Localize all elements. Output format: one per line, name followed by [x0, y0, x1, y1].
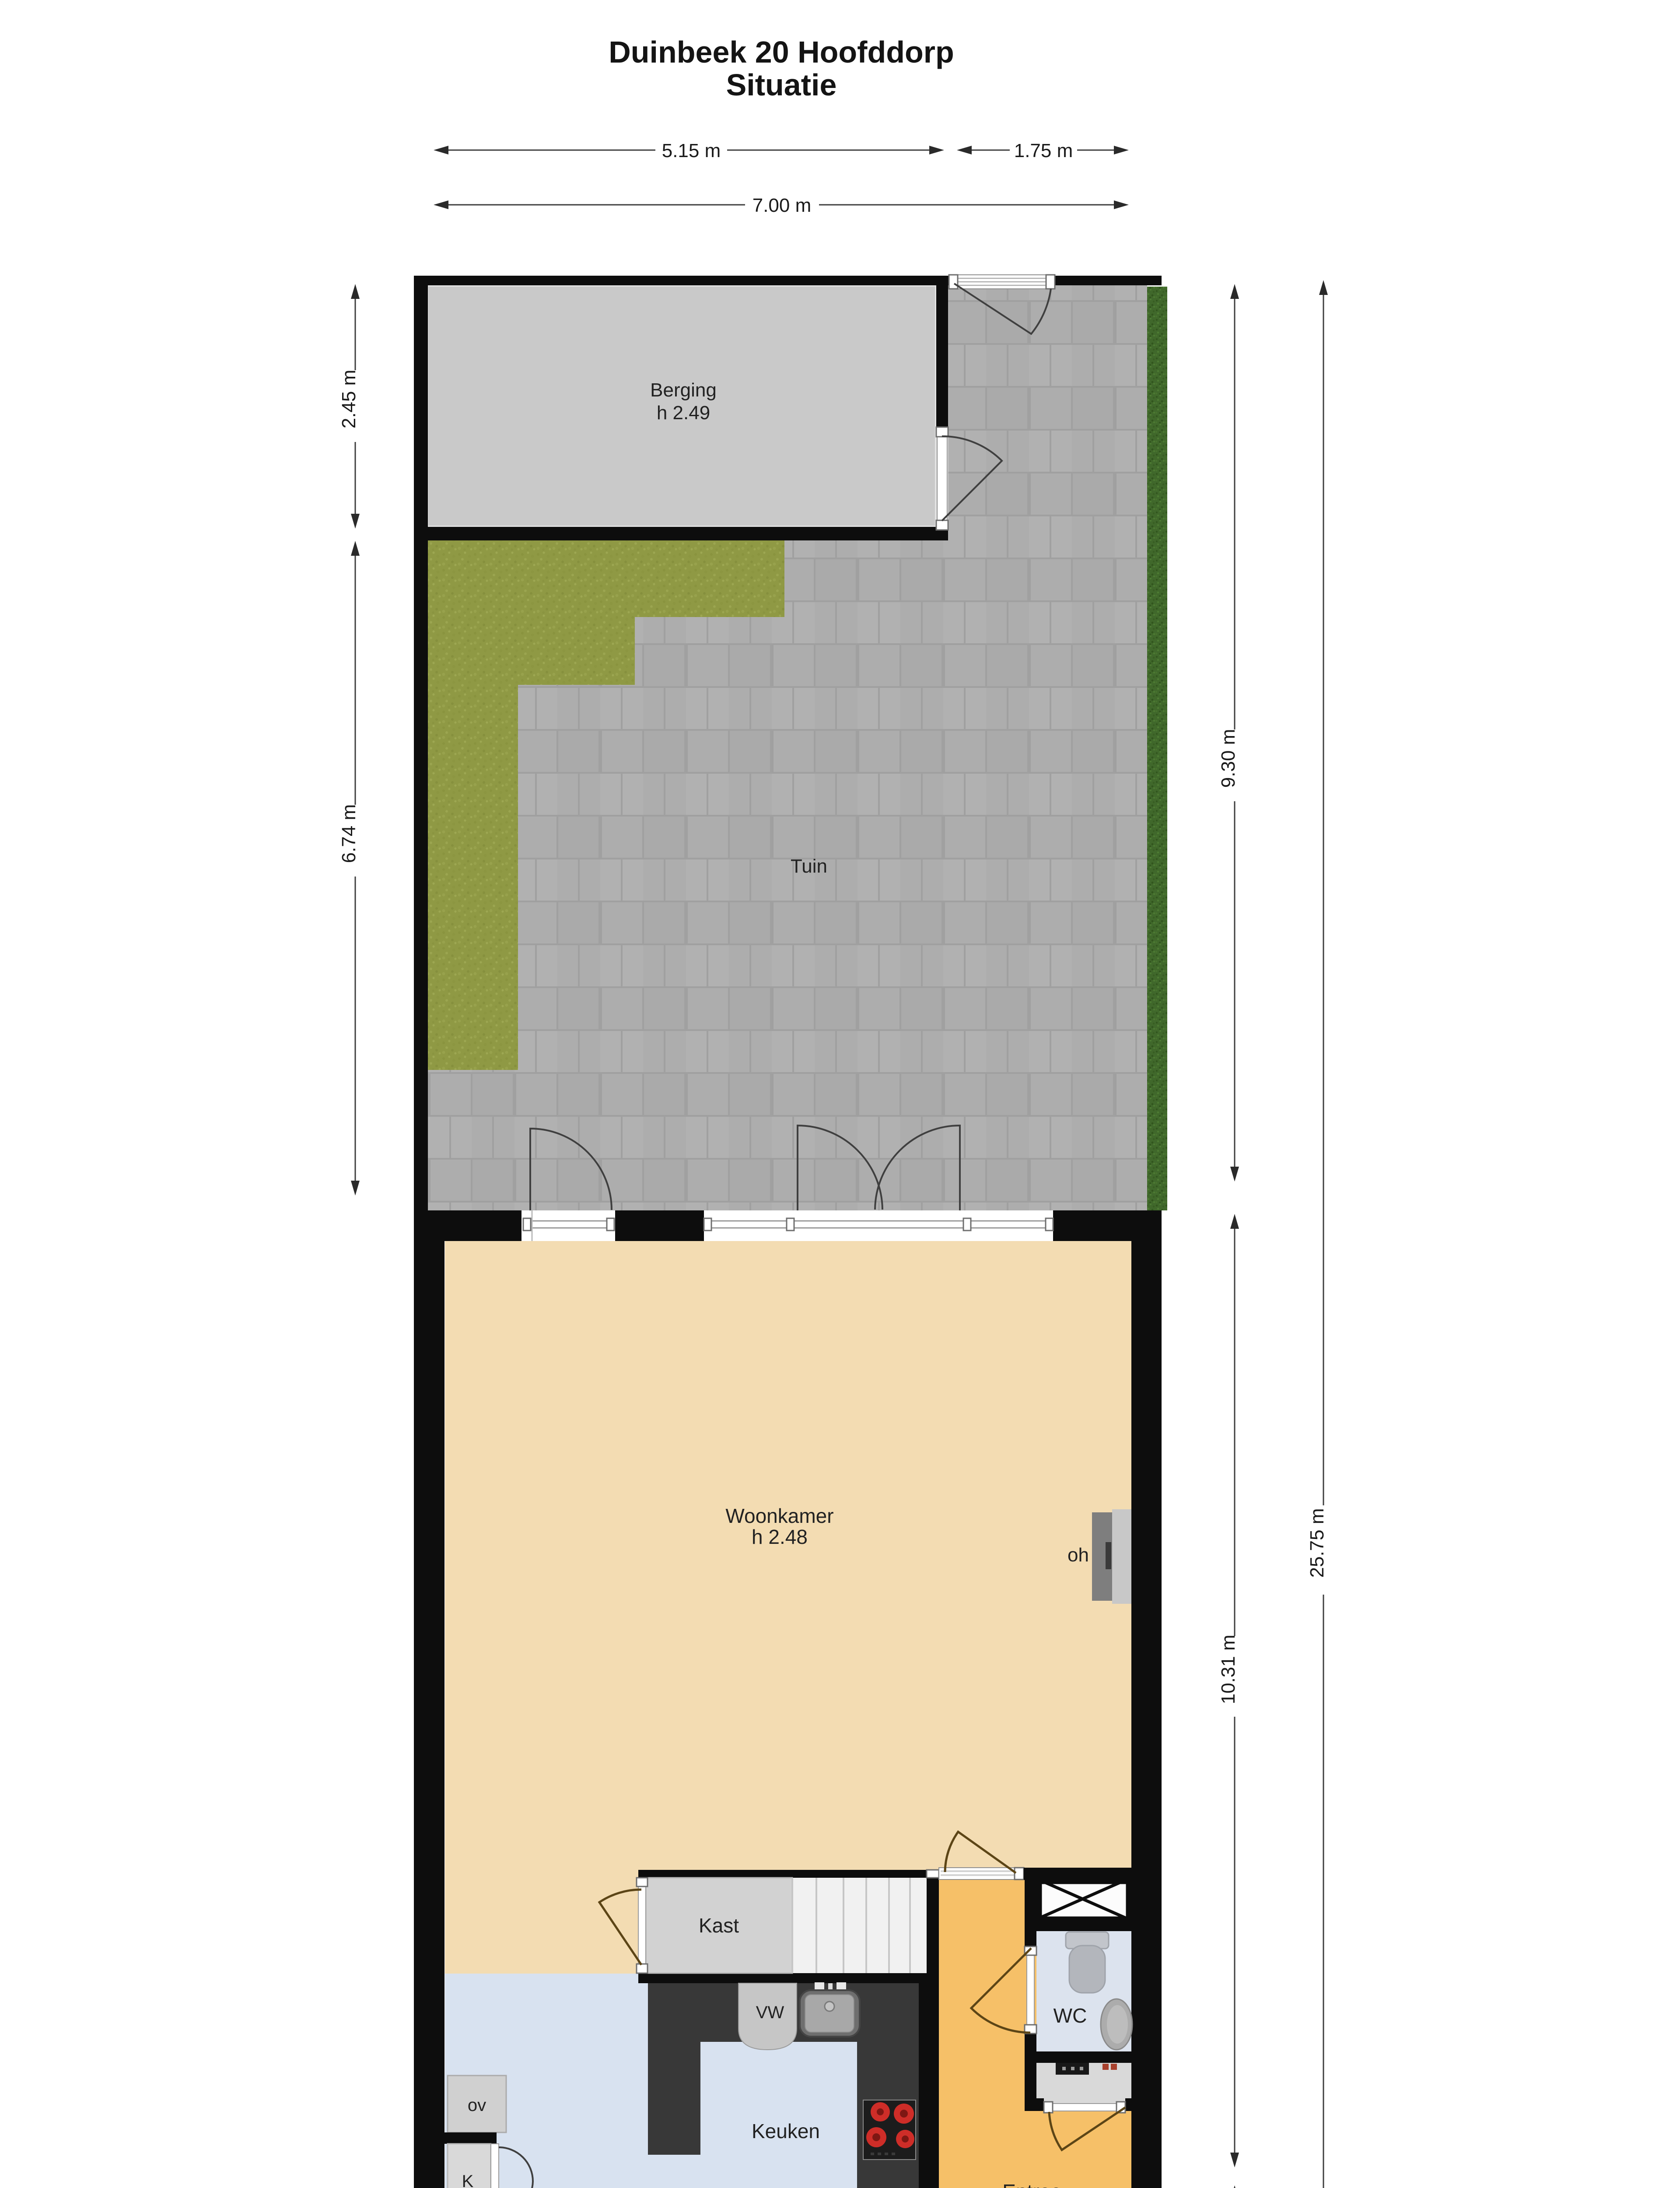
svg-text:Tuin: Tuin: [791, 856, 827, 877]
svg-text:10.31 m: 10.31 m: [1218, 1635, 1239, 1704]
svg-text:oh: oh: [1067, 1544, 1089, 1566]
svg-text:1.75 m: 1.75 m: [1014, 140, 1073, 161]
svg-text:VW: VW: [756, 2003, 784, 2022]
svg-text:Keuken: Keuken: [752, 2120, 820, 2142]
svg-text:Kast: Kast: [699, 1914, 739, 1937]
svg-text:Situatie: Situatie: [726, 68, 837, 102]
svg-text:2.45 m: 2.45 m: [338, 370, 360, 429]
svg-text:6.74 m: 6.74 m: [338, 804, 360, 863]
svg-text:25.75 m: 25.75 m: [1306, 1508, 1328, 1578]
svg-text:Woonkamer: Woonkamer: [725, 1504, 833, 1527]
svg-text:9.30 m: 9.30 m: [1218, 729, 1239, 788]
svg-text:Entree: Entree: [1002, 2180, 1062, 2188]
svg-text:K: K: [462, 2172, 474, 2188]
svg-text:7.00 m: 7.00 m: [752, 195, 812, 216]
svg-text:Duinbeek 20 Hoofddorp: Duinbeek 20 Hoofddorp: [609, 35, 954, 69]
svg-text:5.15 m: 5.15 m: [662, 140, 721, 161]
svg-text:ov: ov: [468, 2096, 486, 2115]
svg-text:WC: WC: [1053, 2004, 1087, 2027]
svg-text:h 2.48: h 2.48: [752, 1525, 808, 1548]
svg-text:h 2.49: h 2.49: [657, 402, 710, 424]
svg-text:Berging: Berging: [650, 379, 717, 401]
